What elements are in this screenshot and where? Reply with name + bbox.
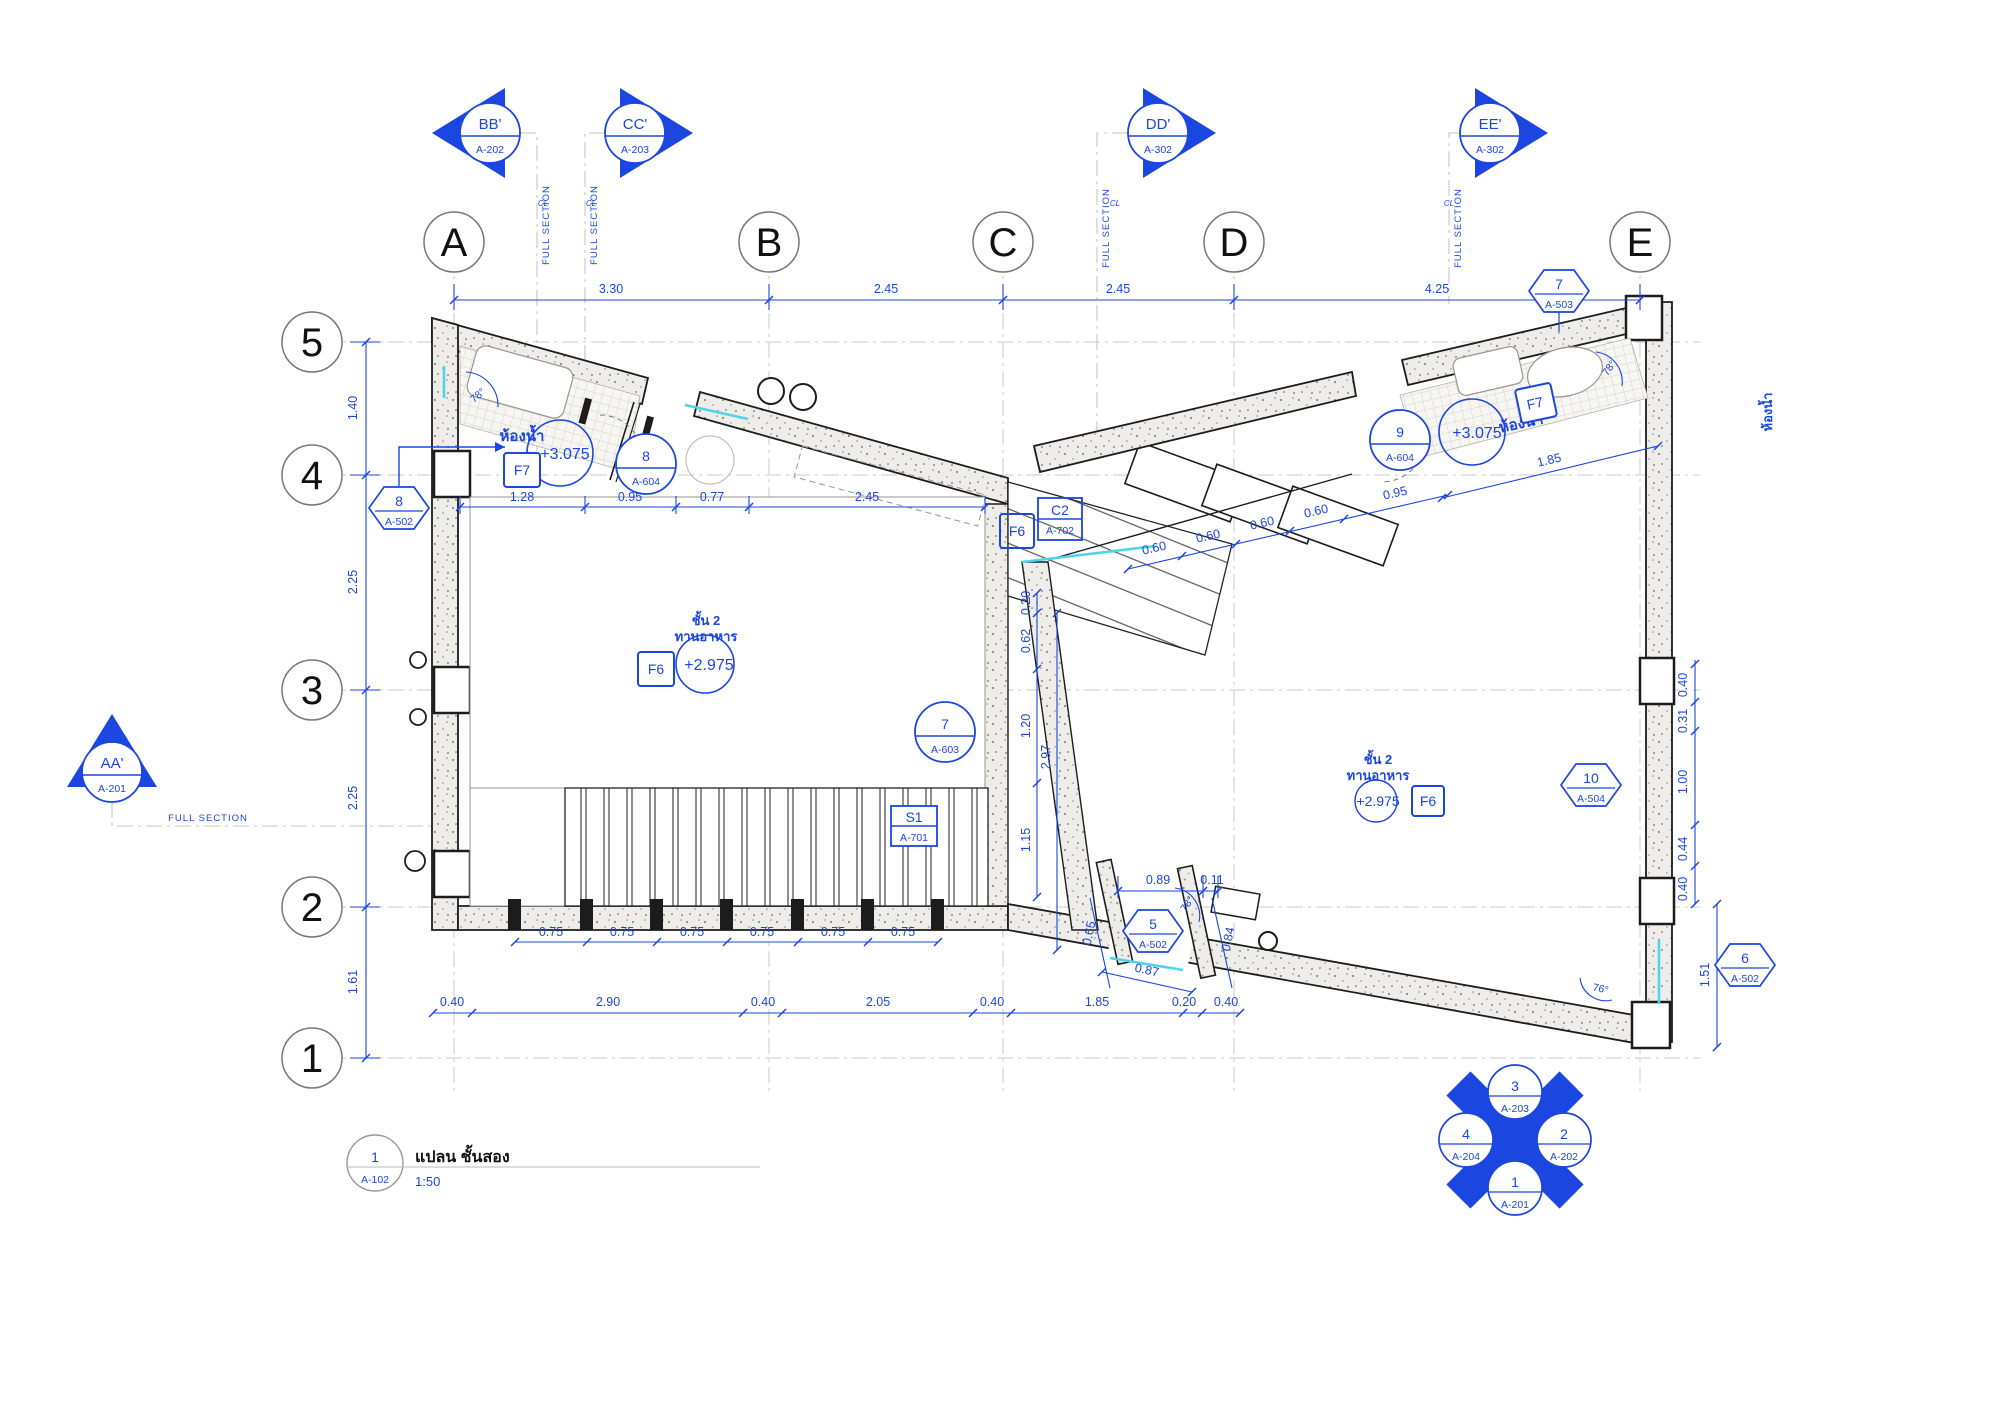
- dim-label: 0.75: [680, 925, 704, 939]
- bathroom-label: ห้องน้ำ: [500, 424, 545, 445]
- dim-label: 0.11: [1200, 873, 1223, 887]
- tag-number: 7: [941, 716, 949, 732]
- tag-number: 2: [1560, 1126, 1568, 1142]
- detail-tag-hex-6[interactable]: 6 A-502: [1715, 944, 1775, 986]
- dim-label: 0.75: [539, 925, 563, 939]
- finish-label: F6: [648, 661, 665, 677]
- full-section-note: FULL SECTION: [589, 185, 600, 265]
- section-sheet: A-302: [1144, 144, 1172, 156]
- tag-number: 7: [1555, 276, 1563, 292]
- grid-bubble-col-b: B: [739, 212, 799, 272]
- tag-sheet: A-502: [1731, 973, 1759, 985]
- plumbing-fixture: [758, 378, 784, 404]
- dim-label: 2.25: [346, 570, 360, 594]
- tag-sheet: A-604: [1386, 452, 1414, 464]
- dim-label: 1.20: [1019, 714, 1033, 738]
- detail-tag-hex-8[interactable]: 8 A-502: [369, 487, 429, 529]
- tag-sheet: A-502: [1139, 939, 1167, 951]
- tag-number: 6: [1741, 950, 1749, 966]
- dim-label: 1.28: [510, 490, 534, 504]
- stair-tag-s1[interactable]: S1 A-701: [891, 806, 937, 846]
- grid-col-label: E: [1627, 221, 1654, 265]
- wall-fixture: [410, 709, 426, 725]
- dim-label: 0.44: [1676, 837, 1690, 861]
- detail-tag-circle-9[interactable]: 9 A-604: [1370, 410, 1430, 470]
- compass-circle-bottom[interactable]: 1 A-201: [1488, 1161, 1542, 1215]
- dim-label: 1.15: [1019, 828, 1033, 852]
- room-name-line1: ชั้น 2: [1364, 749, 1393, 767]
- dim-label: 0.40: [1676, 673, 1690, 697]
- dim-label: 2.90: [596, 995, 620, 1009]
- dim-label: 0.40: [751, 995, 775, 1009]
- wall-top-right-sloped: [1034, 372, 1356, 472]
- full-section-note: FULL SECTION: [541, 185, 552, 265]
- dim-label: 0.40: [440, 995, 464, 1009]
- finish-label: F6: [1420, 793, 1437, 809]
- tag-sheet: A-204: [1452, 1151, 1480, 1163]
- detail-tag-hex-10[interactable]: 10 A-504: [1561, 764, 1621, 806]
- section-marker-bb[interactable]: BB' A-202: [432, 88, 520, 178]
- grid-bubble-row-4: 4: [282, 445, 342, 505]
- tag-number: 1: [1511, 1174, 1519, 1190]
- dim-label: 0.95: [1382, 484, 1409, 503]
- stair-flight: [1278, 486, 1398, 566]
- section-sheet: A-202: [476, 144, 504, 156]
- column-pilaster: [434, 851, 470, 897]
- grid-bubble-row-1: 1: [282, 1028, 342, 1088]
- dim-label: 1.85: [1536, 451, 1563, 470]
- dim-label: 0.89: [1146, 873, 1170, 887]
- drawing-scale: 1:50: [415, 1174, 440, 1189]
- dim-label: 0.75: [821, 925, 845, 939]
- column-pilaster: [434, 451, 470, 497]
- wall-bottom-right-sloped: [1008, 904, 1662, 1048]
- section-marker-dd[interactable]: DD' A-302: [1128, 88, 1216, 178]
- dim-label: 2.45: [874, 282, 898, 296]
- column-pilaster: [434, 667, 470, 713]
- dim-ext: [350, 342, 380, 1058]
- elevation-compass[interactable]: 3 A-203 2 A-202 1 A-201 4 A-204: [1439, 1065, 1591, 1215]
- drawing-title-block: 1 A-102 แปลน ชั้นสอง 1:50: [347, 1135, 760, 1191]
- grid-col-label: D: [1220, 221, 1249, 265]
- wall-left: [432, 318, 458, 930]
- level-value: +3.075: [1452, 425, 1501, 442]
- drawing-title: แปลน ชั้นสอง: [415, 1144, 510, 1166]
- dim-label: 0.20: [1019, 591, 1033, 615]
- post: [720, 899, 733, 930]
- title-tag-number: 1: [371, 1149, 379, 1165]
- grid-row-label: 1: [301, 1037, 323, 1081]
- column-pilaster: [1640, 658, 1674, 704]
- sink-fixture: [686, 436, 734, 484]
- tag-number: 8: [395, 493, 403, 509]
- dim-label: 1.61: [346, 970, 360, 994]
- full-section-note: FULL SECTION: [1101, 188, 1112, 268]
- wall-fixture: [410, 652, 426, 668]
- stair-landing: [470, 788, 565, 906]
- section-label: AA': [101, 755, 124, 772]
- column-pilaster: [1632, 1002, 1670, 1048]
- grid-row-label: 2: [301, 886, 323, 930]
- dim-label: 1.85: [1085, 995, 1109, 1009]
- section-label: EE': [1479, 116, 1502, 133]
- section-line-aa: [112, 802, 432, 826]
- dim-label: 0.40: [980, 995, 1004, 1009]
- tag-number: 9: [1396, 424, 1404, 440]
- compass-circle-left[interactable]: 4 A-204: [1439, 1113, 1493, 1167]
- dim-label: 4.25: [1425, 282, 1449, 296]
- grid-col-label: A: [441, 221, 468, 265]
- right-block: [1008, 296, 1674, 1048]
- tag-number: 10: [1583, 770, 1599, 786]
- wall-top-center-sloped: [694, 392, 1008, 504]
- grid-bubble-col-e: E: [1610, 212, 1670, 272]
- tag-number: 8: [642, 448, 650, 464]
- grid-bubble-col-d: D: [1204, 212, 1264, 272]
- finish-label: F6: [1009, 523, 1026, 539]
- dim-label: 0.40: [1214, 995, 1238, 1009]
- dim-label: 2.97: [1039, 745, 1053, 769]
- tag-sheet: A-502: [385, 516, 413, 528]
- column-pilaster: [1626, 296, 1662, 340]
- tag-sheet: A-503: [1545, 299, 1573, 311]
- grid-row-label: 5: [301, 321, 323, 365]
- bathroom-label-rotated: ห้องน้ำ: [1757, 393, 1775, 432]
- wall-fixture: [405, 851, 425, 871]
- column-pilaster: [1640, 878, 1674, 924]
- dim-label: 2.45: [855, 490, 879, 504]
- dim-label: 1.00: [1676, 770, 1690, 794]
- dim-label: 0.77: [700, 490, 724, 504]
- room-name-line1: ชั้น 2: [692, 610, 721, 628]
- dim-label: 0.40: [1676, 877, 1690, 901]
- section-marker-cc[interactable]: CC' A-203: [605, 88, 693, 178]
- post: [861, 899, 874, 930]
- grid-col-label: B: [756, 221, 783, 265]
- post: [791, 899, 804, 930]
- post: [508, 899, 521, 930]
- tag-number: 4: [1462, 1126, 1470, 1142]
- dim-ext: [454, 284, 1640, 310]
- section-sheet: A-302: [1476, 144, 1504, 156]
- dim-label: 1.51: [1698, 963, 1712, 987]
- grid-col-label: C: [989, 221, 1018, 265]
- section-sheet: A-201: [98, 783, 126, 795]
- tag-number: 3: [1511, 1078, 1519, 1094]
- grid-bubble-row-2: 2: [282, 877, 342, 937]
- dim-label: 1.40: [346, 396, 360, 420]
- dim-label: 0.31: [1676, 709, 1690, 733]
- tag-sheet: A-201: [1501, 1199, 1529, 1211]
- full-section-note: FULL SECTION: [168, 813, 248, 824]
- dim-label: 0.20: [1172, 995, 1196, 1009]
- tag-sheet: A-702: [1046, 525, 1074, 537]
- dim-label: 0.75: [610, 925, 634, 939]
- section-marker-ee[interactable]: EE' A-302: [1460, 88, 1548, 178]
- tag-number: 5: [1149, 916, 1157, 932]
- finish-label: F7: [514, 462, 531, 478]
- post: [650, 899, 663, 930]
- dim-label: 3.30: [599, 282, 623, 296]
- drawing-sheet: CL CL CL CL: [0, 0, 2000, 1414]
- post: [931, 899, 944, 930]
- detail-tag-circle-8[interactable]: 8 A-604: [616, 434, 676, 494]
- floor-plan-canvas: CL CL CL CL: [0, 0, 2000, 1414]
- tag-sheet: A-603: [931, 744, 959, 756]
- dim-label: 2.05: [866, 995, 890, 1009]
- tag-sheet: A-202: [1550, 1151, 1578, 1163]
- detail-tag-circle-7[interactable]: 7 A-603: [915, 702, 975, 762]
- grid-bubble-col-c: C: [973, 212, 1033, 272]
- title-tag-sheet: A-102: [361, 1174, 389, 1186]
- room-name-line2: ทานอาหาร: [675, 629, 738, 644]
- plumbing-fixture: [790, 384, 816, 410]
- section-sheet: A-203: [621, 144, 649, 156]
- grid-bubble-row-5: 5: [282, 312, 342, 372]
- section-label: DD': [1146, 116, 1171, 133]
- grid-row-label: 3: [301, 669, 323, 713]
- dim-label: 0.75: [891, 925, 915, 939]
- section-label: BB': [479, 116, 502, 133]
- dim-label: 0.62: [1019, 629, 1033, 653]
- dim-label: 0.75: [750, 925, 774, 939]
- tag-number: S1: [905, 809, 922, 825]
- tag-sheet: A-504: [1577, 793, 1605, 805]
- tag-sheet: A-203: [1501, 1103, 1529, 1115]
- centerline-marks: CL CL CL CL: [538, 199, 1454, 208]
- full-section-note: FULL SECTION: [1453, 188, 1464, 268]
- tag-sheet: A-701: [900, 832, 928, 844]
- level-value: +3.075: [540, 446, 589, 463]
- grid-bubble-row-3: 3: [282, 660, 342, 720]
- angle-label: 76°: [1592, 982, 1610, 997]
- compass-circle-top[interactable]: 3 A-203: [1488, 1065, 1542, 1119]
- dim-label: 2.25: [346, 786, 360, 810]
- level-value: +2.975: [1356, 793, 1399, 809]
- section-marker-aa[interactable]: AA' A-201: [67, 714, 157, 802]
- deck-fixture: [1259, 932, 1277, 950]
- grid-row-label: 4: [301, 454, 323, 498]
- center-stairs: [1008, 442, 1398, 655]
- compass-circle-right[interactable]: 2 A-202: [1537, 1113, 1591, 1167]
- grid-bubble-col-a: A: [424, 212, 484, 272]
- tag-sheet: A-604: [632, 476, 660, 488]
- tag-number: C2: [1051, 502, 1069, 518]
- dim-label: 2.45: [1106, 282, 1130, 296]
- level-value: +2.975: [684, 657, 733, 674]
- post: [580, 899, 593, 930]
- section-label: CC': [623, 116, 648, 133]
